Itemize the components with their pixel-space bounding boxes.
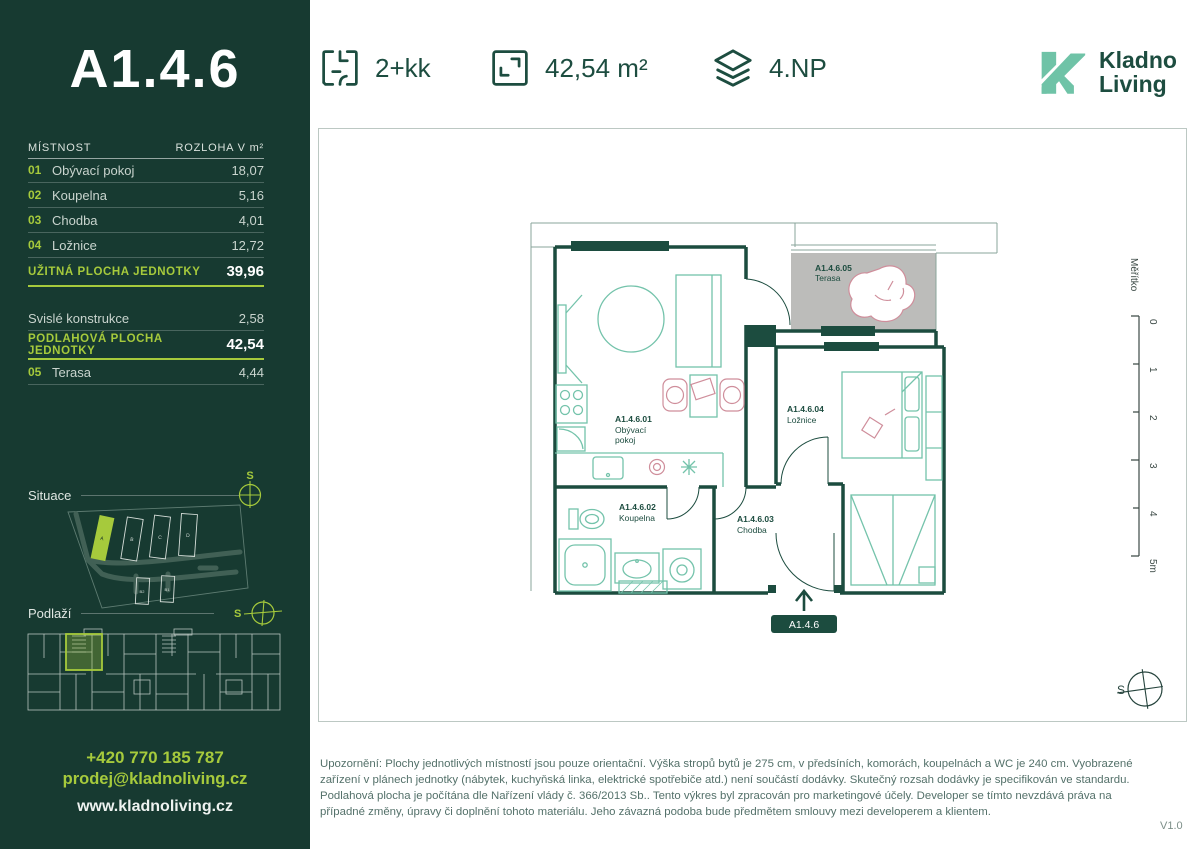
hallway-name: Chodba [737, 525, 767, 535]
living-room-name-1: Obývací [615, 425, 647, 435]
brand-logo-text: Kladno Living [1099, 48, 1177, 96]
row-name: Chodba [52, 213, 239, 228]
email-link[interactable]: prodej@kladnoliving.cz [0, 770, 310, 789]
row-name: Ložnice [52, 238, 231, 253]
entry-arrow-icon [796, 591, 812, 611]
bedroom-window [824, 342, 879, 351]
phone-link[interactable]: +420 770 185 787 [0, 748, 310, 768]
entry-marker: A1.4.6 [771, 591, 837, 633]
compass-icon: S [228, 598, 284, 628]
podlazi-header: Podlaží [28, 606, 214, 621]
table-row: 01 Obývací pokoj 18,07 [28, 158, 264, 183]
row-num: 02 [28, 188, 52, 202]
scale-tick: 5m [1147, 559, 1158, 573]
living-room-id: A1.4.6.01 [615, 414, 652, 424]
compass-n-label: S [246, 470, 253, 482]
floor-area-label: PODLAHOVÁ PLOCHA JEDNOTKY [28, 333, 226, 357]
kladno-living-logo-mark [1035, 47, 1087, 97]
scale-tick: 0 [1147, 319, 1158, 325]
row-area: 5,16 [239, 188, 264, 203]
row-area: 4,44 [239, 365, 264, 380]
terrace-id: A1.4.6.05 [815, 263, 852, 273]
table-row: 03 Chodba 4,01 [28, 208, 264, 233]
unit-title: A1.4.6 [0, 38, 310, 100]
website-link[interactable]: www.kladnoliving.cz [0, 798, 310, 816]
usable-label: UŽITNÁ PLOCHA JEDNOTKY [28, 266, 226, 278]
compass-n-label: S [234, 608, 241, 620]
bedroom-id: A1.4.6.04 [787, 404, 824, 414]
compass-n-label: S [1117, 683, 1125, 697]
living-window [571, 241, 669, 251]
spec-floor: 4.NP [712, 46, 827, 90]
row-num: 01 [28, 163, 52, 177]
col-area: ROZLOHA V m² [176, 142, 264, 154]
logo-line2: Living [1099, 72, 1177, 96]
construction-row: Svislé konstrukce 2,58 [28, 306, 264, 331]
floor-area-row: PODLAHOVÁ PLOCHA JEDNOTKY 42,54 [28, 331, 264, 360]
floor-value: 4.NP [769, 53, 827, 84]
compass-icon: S [1114, 667, 1165, 713]
area-value: 42,54 m² [545, 53, 648, 84]
bathroom-name: Koupelna [619, 513, 655, 523]
floorplan-drawing: A1.4.6.01 Obývací pokoj A1.4.6.02 Koupel… [319, 129, 1184, 719]
floor-area-value: 42,54 [226, 336, 264, 353]
building-b-label: B [130, 537, 135, 544]
row-name: Koupelna [52, 188, 239, 203]
sidebar: A1.4.6 MÍSTNOST ROZLOHA V m² 01 Obývací … [0, 0, 310, 849]
floorplan-icon [320, 46, 360, 90]
logo-line1: Kladno [1099, 48, 1177, 72]
disclaimer-text: Upozornění: Plochy jednotlivých místnost… [320, 757, 1158, 821]
scale-tick: 2 [1147, 415, 1158, 421]
row-num: 04 [28, 238, 52, 252]
construction-label: Svislé konstrukce [28, 311, 239, 326]
building-b2-label: B2 [140, 589, 146, 594]
spec-area: 42,54 m² [490, 46, 648, 90]
room-table: 01 Obývací pokoj 18,07 02 Koupelna 5,16 … [28, 158, 264, 287]
terrace-row: 05 Terasa 4,44 [28, 360, 264, 385]
row-area: 12,72 [231, 238, 264, 253]
situace-label: Situace [28, 488, 71, 503]
floorplan-panel: A1.4.6.01 Obývací pokoj A1.4.6.02 Koupel… [318, 128, 1187, 722]
spec-disposition: 2+kk [320, 46, 431, 90]
scale-tick: 1 [1147, 367, 1158, 373]
site-map: A B C D B2 B1 [40, 502, 260, 614]
usable-value: 39,96 [226, 263, 264, 280]
scale-ruler [1131, 316, 1139, 556]
brand-logo: Kladno Living [1035, 47, 1177, 97]
scale-tick: 4 [1147, 511, 1158, 517]
highlighted-unit [66, 634, 102, 670]
scale-title: Měřítko [1128, 258, 1139, 292]
row-num: 05 [28, 365, 52, 379]
divider-line [81, 613, 214, 614]
divider-line [81, 495, 240, 496]
construction-value: 2,58 [239, 311, 264, 326]
bathroom-id: A1.4.6.02 [619, 502, 656, 512]
floor-overview-plan [26, 628, 284, 720]
terrace-window [821, 326, 875, 336]
row-num: 03 [28, 213, 52, 227]
table-row: 04 Ložnice 12,72 [28, 233, 264, 258]
terrace-name: Terasa [815, 273, 841, 283]
building-d-label: D [186, 533, 190, 539]
row-name: Terasa [52, 365, 239, 380]
version-label: V1.0 [1160, 820, 1190, 832]
table-header: MÍSTNOST ROZLOHA V m² [28, 130, 264, 159]
living-room-name-2: pokoj [615, 435, 635, 445]
layers-icon [712, 46, 754, 90]
secondary-table: Svislé konstrukce 2,58 PODLAHOVÁ PLOCHA … [28, 306, 264, 385]
bedroom-name: Ložnice [787, 415, 817, 425]
row-name: Obývací pokoj [52, 163, 231, 178]
situace-header: Situace [28, 488, 240, 503]
area-icon [490, 46, 530, 90]
building-b1-label: B1 [165, 587, 171, 592]
row-area: 4,01 [239, 213, 264, 228]
podlazi-label: Podlaží [28, 606, 71, 621]
building-c-label: C [158, 535, 163, 541]
disposition-value: 2+kk [375, 53, 431, 84]
unit-badge-label: A1.4.6 [789, 619, 820, 631]
row-area: 18,07 [231, 163, 264, 178]
table-row: 02 Koupelna 5,16 [28, 183, 264, 208]
shaft [746, 325, 776, 347]
col-room: MÍSTNOST [28, 142, 91, 154]
usable-area-row: UŽITNÁ PLOCHA JEDNOTKY 39,96 [28, 258, 264, 287]
scale-tick: 3 [1147, 463, 1158, 469]
hallway-id: A1.4.6.03 [737, 514, 774, 524]
